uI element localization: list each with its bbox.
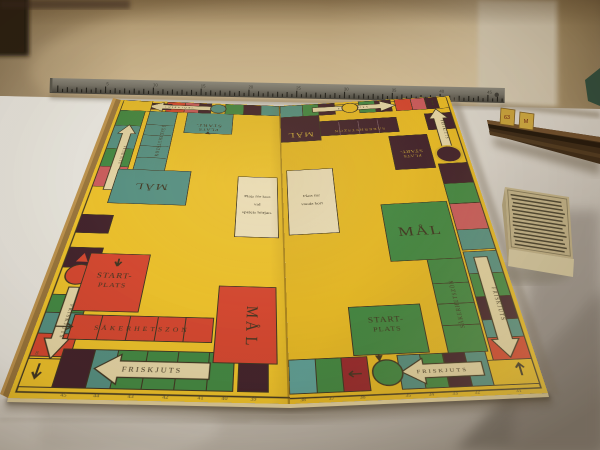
svg-text:45: 45 [487,90,492,95]
svg-text:15: 15 [201,83,206,88]
svg-text:20: 20 [248,84,253,89]
svg-text:M: M [524,119,529,125]
svg-text:10: 10 [153,82,158,87]
svg-text:30: 30 [344,86,349,91]
svg-text:63: 63 [504,115,510,121]
svg-text:25: 25 [296,85,301,90]
svg-text:40: 40 [439,89,444,94]
svg-text:35: 35 [392,88,397,93]
